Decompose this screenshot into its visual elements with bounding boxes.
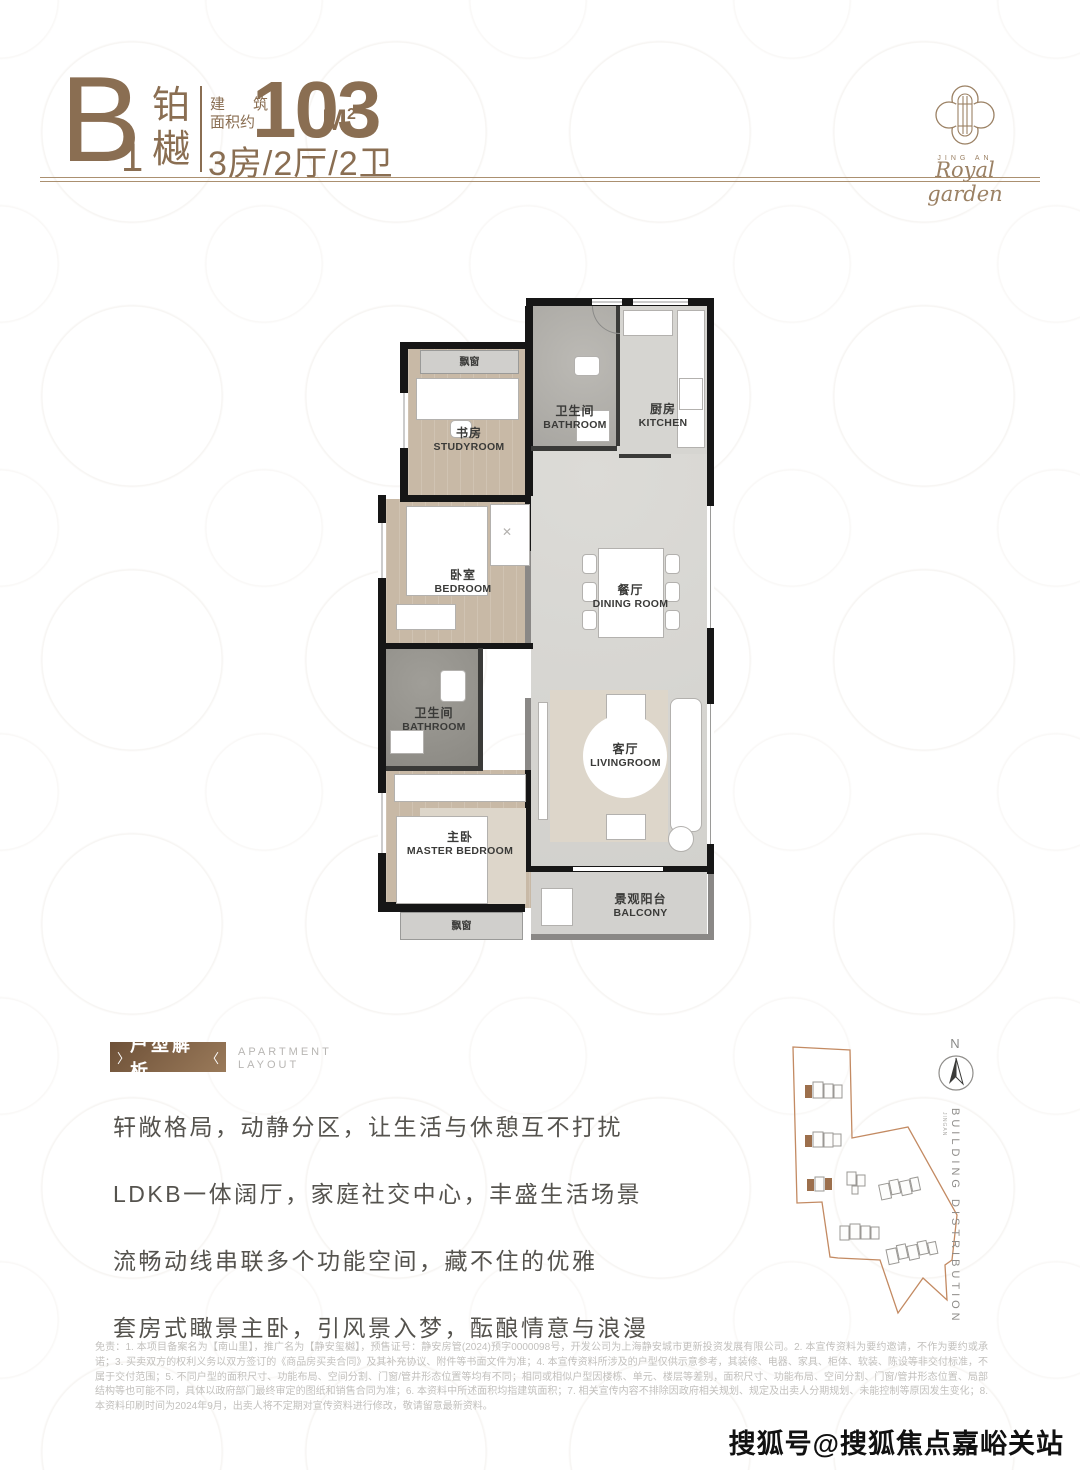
unit-type-number: 1 bbox=[121, 136, 143, 181]
kitchen-sink-counter bbox=[623, 310, 673, 336]
bedroom-desk bbox=[396, 604, 456, 630]
room-label-balcony: 景观阳台BALCONY bbox=[573, 890, 708, 919]
wall-right-mid bbox=[707, 628, 714, 704]
entry-opening bbox=[592, 299, 622, 305]
bedroom-window bbox=[378, 523, 386, 578]
area-label-char-a: 建 bbox=[210, 96, 225, 114]
master-wall-right-door bbox=[525, 698, 531, 770]
studyroom-window bbox=[400, 393, 408, 448]
room-label-master-bedroom: 主卧MASTER BEDROOM bbox=[390, 828, 530, 857]
site-axis-label: BUILDING DISTRIBUTION bbox=[949, 1108, 961, 1325]
floor-plan: 飘窗 飘窗 bbox=[378, 298, 714, 950]
dining-chair bbox=[665, 554, 680, 574]
compass-icon bbox=[937, 1054, 975, 1092]
bath1-toilet bbox=[574, 356, 600, 376]
badge-mark-left: 〉 bbox=[117, 1048, 130, 1067]
description-line-1: 轩敞格局，动静分区，让生活与休憩互不打扰 bbox=[113, 1108, 693, 1142]
sohu-watermark: 搜狐号@搜狐焦点嘉峪关站 bbox=[729, 1422, 1064, 1461]
wardrobe-x-icon: ✕ bbox=[502, 526, 512, 538]
north-label: N bbox=[935, 1036, 975, 1051]
header-rule bbox=[40, 177, 1040, 182]
header-divider bbox=[200, 86, 202, 172]
bay-window-top: 飘窗 bbox=[420, 350, 519, 374]
badge-title: 户型解析 bbox=[130, 1031, 206, 1083]
unit-name: 铂 樾 bbox=[150, 84, 192, 172]
dining-window bbox=[707, 506, 714, 628]
brand-name-script: Royal garden bbox=[895, 158, 1035, 206]
unit-name-char-2: 樾 bbox=[150, 128, 192, 172]
room-label-livingroom: 客厅LIVINGROOM bbox=[558, 740, 693, 769]
flyer-page: B 1 铂 樾 建 筑 面积约 103 M2 3房/2厅/2卫 bbox=[0, 0, 1080, 1470]
description-line-4: 套房式瞰景主卧，引风景入梦，酝酿情意与浪漫 bbox=[113, 1309, 693, 1343]
quatrefoil-emblem-icon bbox=[930, 82, 1000, 148]
description-line-3: 流畅动线串联多个功能空间，藏不住的优雅 bbox=[113, 1242, 693, 1276]
balcony-slider bbox=[573, 867, 663, 871]
room-label-bathroom1: 卫生间BATHROOM bbox=[533, 402, 617, 431]
room-label-studyroom: 书房STUDYROOM bbox=[409, 424, 529, 453]
section-subtitle-line1: APARTMENT bbox=[238, 1046, 332, 1059]
master-wall-bottom bbox=[386, 904, 525, 912]
study-daybed bbox=[416, 378, 519, 420]
wall-study-hall bbox=[525, 306, 533, 496]
wall-right-lower bbox=[707, 844, 714, 874]
bay-window-bottom: 飘窗 bbox=[400, 912, 523, 940]
description-paragraph: 轩敞格局，动静分区，让生活与休憩互不打扰 LDKB一体阔厅，家庭社交中心，丰盛生… bbox=[113, 1108, 693, 1376]
section-subtitle: APARTMENT LAYOUT bbox=[238, 1046, 332, 1072]
wall-kitchen-bottom bbox=[619, 454, 671, 458]
description-line-2: LDKB一体阔厅，家庭社交中心，丰盛生活场景 bbox=[113, 1175, 693, 1209]
badge-mark-right: 〈 bbox=[206, 1048, 219, 1067]
tv-bench bbox=[538, 702, 548, 820]
room-label-bedroom: 卧室BEDROOM bbox=[398, 566, 528, 595]
master-wardrobe bbox=[394, 774, 526, 802]
room-label-kitchen: 厨房KITCHEN bbox=[621, 400, 705, 429]
balcony-wall-bottom bbox=[531, 934, 714, 940]
balcony-washer bbox=[541, 888, 573, 926]
bath2-toilet bbox=[440, 670, 466, 702]
brand-logo: JING AN Royal garden bbox=[895, 82, 1035, 206]
site-axis-sublabel: JINGAN bbox=[941, 1112, 947, 1136]
balcony-wall-right bbox=[708, 874, 714, 938]
studyroom-wall-top bbox=[400, 342, 531, 349]
section-badge: 〉 户型解析 〈 bbox=[110, 1042, 226, 1072]
bath2-sink bbox=[390, 730, 424, 754]
section-subtitle-line2: LAYOUT bbox=[238, 1059, 332, 1072]
wall-right-upper bbox=[707, 298, 714, 506]
living-armchair-bottom bbox=[606, 814, 646, 840]
unit-name-char-1: 铂 bbox=[150, 84, 192, 128]
living-window bbox=[707, 704, 714, 844]
dining-chair bbox=[582, 554, 597, 574]
dining-chair bbox=[665, 610, 680, 630]
disclaimer-text: 免责：1. 本项目备案名为【南山里】，推广名为【静安玺樾】，预售证号：静安房管(… bbox=[95, 1341, 988, 1415]
wall-bedroom-bottom bbox=[378, 643, 533, 649]
room-label-dining: 餐厅DINING ROOM bbox=[563, 581, 698, 610]
room-label-bathroom2: 卫生间BATHROOM bbox=[388, 704, 480, 733]
wall-bath1-bottom bbox=[531, 446, 617, 451]
bathroom2-wall-bottom bbox=[386, 766, 483, 771]
master-window bbox=[378, 793, 386, 853]
wall-study-bedroom bbox=[400, 495, 531, 502]
area-unit: M2 bbox=[322, 104, 356, 138]
building-distribution-map bbox=[775, 1030, 1080, 1335]
dining-chair bbox=[582, 610, 597, 630]
living-side-table bbox=[668, 826, 694, 852]
kitchen-window bbox=[633, 299, 688, 305]
